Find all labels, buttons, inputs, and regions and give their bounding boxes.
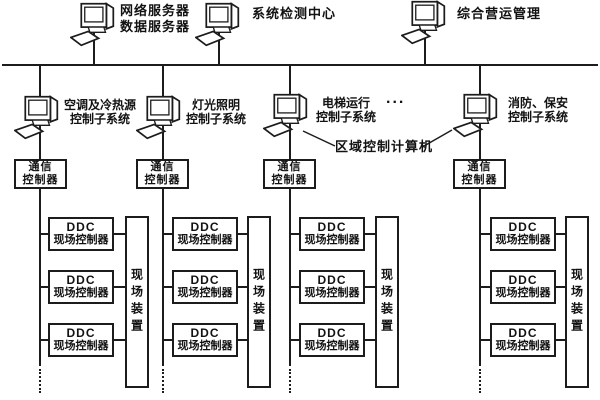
server-label: 综合营运管理: [457, 6, 541, 22]
subsystem-label-line2: 控制子系统: [57, 112, 143, 126]
ddc-line2: 现场控制器: [178, 234, 233, 247]
comm-controller-box: 通信 控制器: [453, 159, 506, 189]
branch-line: [162, 286, 172, 288]
ddc-controller-box: DDC 现场控制器: [299, 217, 365, 251]
branch-line: [289, 286, 299, 288]
backbone-bus-line: [2, 64, 598, 66]
ddc-line1: DDC: [191, 221, 220, 234]
branch-line: [555, 286, 565, 288]
branch-line: [237, 233, 247, 235]
comm-controller-line2: 控制器: [23, 174, 59, 187]
ddc-line2: 现场控制器: [305, 340, 360, 353]
ddc-line1: DDC: [509, 327, 538, 340]
more-subsystems-ellipsis: ...: [386, 90, 405, 108]
ddc-line1: DDC: [67, 274, 96, 287]
ddc-controller-box: DDC 现场控制器: [172, 270, 238, 304]
branch-line: [479, 339, 490, 341]
ddc-line1: DDC: [509, 221, 538, 234]
server-label-line1: 网络服务器: [120, 3, 190, 19]
server-label: 网络服务器 数据服务器: [120, 3, 190, 35]
branch-line: [289, 339, 299, 341]
ddc-line1: DDC: [67, 221, 96, 234]
ddc-line2: 现场控制器: [496, 287, 551, 300]
ddc-line2: 现场控制器: [54, 287, 109, 300]
column-continuation-dots: [289, 369, 291, 393]
subsystem-label: 消防、保安 控制子系统: [497, 96, 579, 124]
subsystem-label: 空调及冷热源 控制子系统: [57, 98, 143, 126]
field-device-box: 现场装置: [125, 216, 149, 388]
ddc-line1: DDC: [191, 274, 220, 287]
branch-line: [40, 233, 48, 235]
ddc-line1: DDC: [509, 274, 538, 287]
field-device-box: 现场装置: [247, 216, 271, 388]
comm-controller-box: 通信 控制器: [136, 159, 189, 189]
branch-line: [364, 286, 375, 288]
comm-controller-box: 通信 控制器: [263, 159, 316, 189]
branch-line: [40, 339, 48, 341]
ddc-line2: 现场控制器: [54, 234, 109, 247]
ddc-line2: 现场控制器: [305, 287, 360, 300]
subsystem-label-line1: 灯光照明: [179, 98, 253, 112]
server-label-line1: 系统检测中心: [252, 6, 336, 22]
bas-architecture-diagram: 网络服务器 数据服务器 系统检测中心 综合营运管理 空调及冷热源 控制子系统 灯…: [0, 0, 600, 400]
ddc-controller-box: DDC 现场控制器: [172, 217, 238, 251]
column-continuation-dots: [479, 369, 481, 393]
branch-line: [479, 233, 490, 235]
branch-line: [555, 339, 565, 341]
ddc-controller-box: DDC 现场控制器: [48, 270, 114, 304]
field-device-label: 现场装置: [129, 268, 146, 336]
subsystem-label-line1: 空调及冷热源: [57, 98, 143, 112]
ddc-line1: DDC: [318, 327, 347, 340]
branch-line: [364, 233, 375, 235]
comm-controller-line1: 通信: [151, 161, 175, 174]
branch-line: [113, 339, 125, 341]
computer-icon: [195, 2, 247, 47]
ddc-controller-box: DDC 现场控制器: [299, 323, 365, 357]
branch-line: [364, 339, 375, 341]
computer-icon: [401, 0, 453, 45]
ddc-line2: 现场控制器: [496, 234, 551, 247]
ddc-line1: DDC: [67, 327, 96, 340]
ddc-controller-box: DDC 现场控制器: [48, 217, 114, 251]
branch-line: [162, 339, 172, 341]
comm-controller-line2: 控制器: [462, 174, 498, 187]
field-device-label: 现场装置: [251, 268, 268, 336]
column-continuation-dots: [162, 369, 164, 393]
comm-controller-line1: 通信: [29, 161, 53, 174]
ddc-line1: DDC: [318, 274, 347, 287]
comm-controller-box: 通信 控制器: [14, 159, 67, 189]
ddc-line2: 现场控制器: [178, 340, 233, 353]
regional-computer-label: 区域控制计算机: [335, 139, 433, 155]
ddc-controller-box: DDC 现场控制器: [299, 270, 365, 304]
comm-controller-line2: 控制器: [145, 174, 181, 187]
branch-line: [113, 233, 125, 235]
computer-icon: [70, 2, 122, 47]
subsystem-label-line1: 消防、保安: [497, 96, 579, 110]
branch-line: [113, 286, 125, 288]
subsystem-label: 灯光照明 控制子系统: [179, 98, 253, 126]
branch-line: [237, 286, 247, 288]
comm-controller-line1: 通信: [278, 161, 302, 174]
branch-line: [237, 339, 247, 341]
comm-controller-line1: 通信: [468, 161, 492, 174]
computer-icon: [263, 93, 315, 138]
branch-line: [162, 233, 172, 235]
column-continuation-dots: [39, 369, 41, 393]
field-device-label: 现场装置: [379, 268, 396, 336]
ddc-line2: 现场控制器: [54, 340, 109, 353]
server-label-line1: 综合营运管理: [457, 6, 541, 22]
ddc-line2: 现场控制器: [178, 287, 233, 300]
ddc-line2: 现场控制器: [496, 340, 551, 353]
branch-line: [555, 233, 565, 235]
ddc-line2: 现场控制器: [305, 234, 360, 247]
subsystem-label-line2: 控制子系统: [497, 110, 579, 124]
branch-line: [40, 286, 48, 288]
ddc-controller-box: DDC 现场控制器: [490, 270, 556, 304]
server-label-line2: 数据服务器: [120, 19, 190, 35]
field-device-label: 现场装置: [569, 268, 586, 336]
ddc-line1: DDC: [318, 221, 347, 234]
subsystem-label-line1: 电梯运行: [310, 96, 382, 110]
ddc-controller-box: DDC 现场控制器: [490, 323, 556, 357]
subsystem-label: 电梯运行 控制子系统: [310, 96, 382, 124]
comm-controller-line2: 控制器: [272, 174, 308, 187]
ddc-controller-box: DDC 现场控制器: [172, 323, 238, 357]
ddc-line1: DDC: [191, 327, 220, 340]
subsystem-label-line2: 控制子系统: [310, 110, 382, 124]
field-device-box: 现场装置: [565, 216, 589, 388]
subsystem-label-line2: 控制子系统: [179, 112, 253, 126]
branch-line: [289, 233, 299, 235]
ddc-controller-box: DDC 现场控制器: [48, 323, 114, 357]
server-label: 系统检测中心: [252, 6, 336, 22]
branch-line: [479, 286, 490, 288]
field-device-box: 现场装置: [375, 216, 399, 388]
ddc-controller-box: DDC 现场控制器: [490, 217, 556, 251]
